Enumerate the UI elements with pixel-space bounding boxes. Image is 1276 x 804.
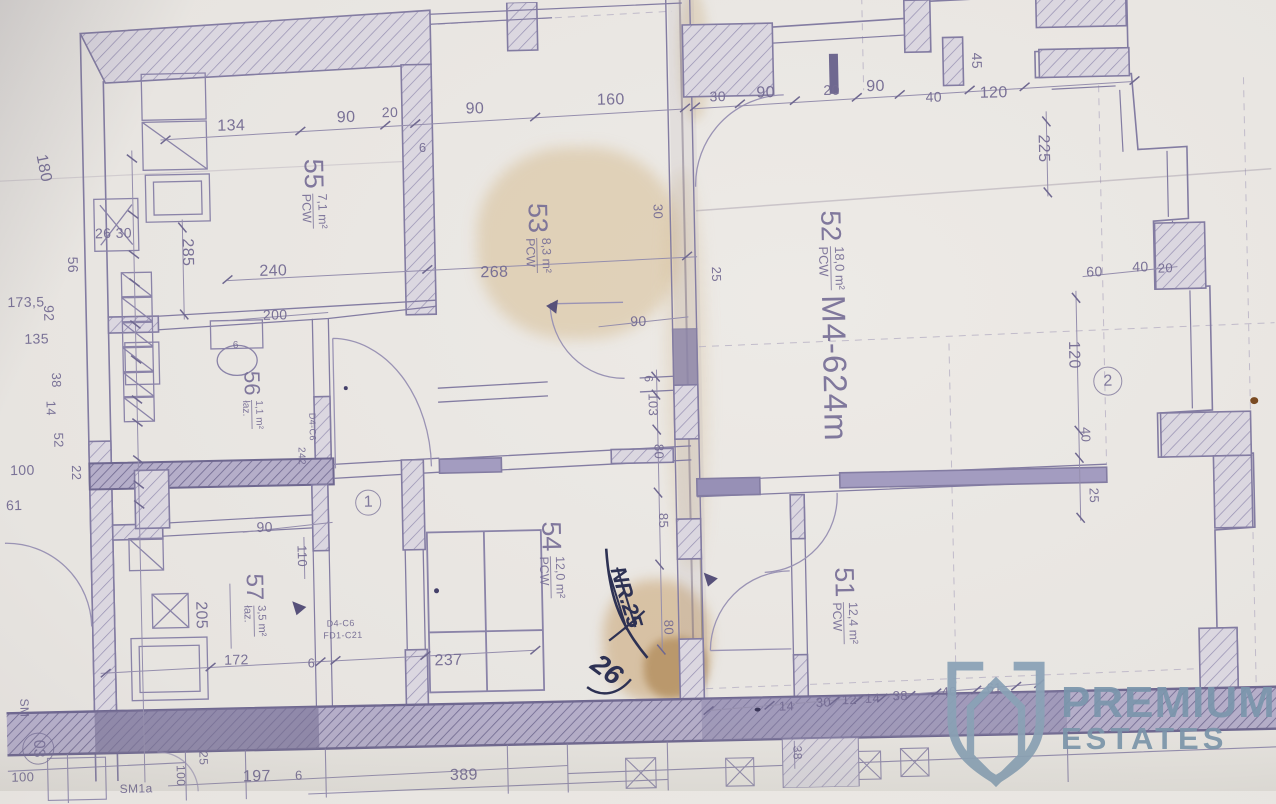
axis-marker: 03	[22, 732, 55, 765]
dimension-label: 25	[196, 751, 210, 765]
dimension-label: 12	[842, 692, 858, 707]
dimension-label: 52	[51, 432, 66, 448]
room-type: łaz.	[240, 401, 252, 430]
dimension-label: 85	[656, 513, 671, 529]
door-code-label: D4-C6	[307, 413, 318, 441]
room-type: PCW	[299, 194, 314, 229]
watermark-wordmark-line2: ESTATES	[1061, 723, 1276, 756]
dimension-label: 14	[779, 698, 795, 713]
room-area: 18,0 m²	[830, 246, 847, 290]
room-number: 54	[535, 521, 567, 552]
room-label: 538,3 m²PCW	[521, 203, 553, 274]
room-label: 5112,4 m²PCW	[828, 567, 861, 645]
dimension-label: 389	[450, 766, 478, 785]
watermark-wordmark-line1: PREMIUM	[1061, 683, 1276, 723]
dimension-label: 90	[337, 109, 356, 127]
watermark: PREMIUM ESTATES	[944, 659, 1276, 791]
room-label: 561,1 m²łaz.	[238, 371, 265, 430]
room-area: 1,1 m²	[251, 400, 265, 429]
room-label: 5218,0 m²PCWM4-624m	[811, 210, 854, 442]
room-type: PCW	[829, 602, 844, 644]
ink-speck	[344, 386, 348, 390]
handwritten-crossed-unit-number: NR.25	[605, 564, 648, 631]
door-code-label: D4-C6	[327, 618, 355, 629]
door-code-label: FD1-C21	[323, 630, 363, 641]
room-number: 56	[238, 371, 265, 396]
dimension-label: 80	[661, 620, 676, 636]
dimension-label: 100	[10, 462, 35, 479]
dimension-label: 120	[980, 84, 1008, 103]
dimension-label: 60	[1086, 263, 1103, 279]
dimension-label: 268	[480, 264, 508, 283]
dimension-label: 285	[178, 238, 197, 266]
room-area: 7,1 m²	[313, 193, 330, 228]
apartment-designation: M4-624m	[813, 295, 854, 442]
dimension-label: 172	[224, 651, 249, 668]
dimension-label: 56	[65, 256, 81, 273]
plan-code-label: SM	[17, 698, 31, 717]
handwritten-unit-number: 26	[585, 648, 629, 692]
dimension-label: 30	[709, 88, 726, 104]
dimension-label: 6	[295, 768, 303, 783]
room-label: 573,5 m²łaz.	[240, 573, 269, 637]
dimension-label: 173,5	[7, 293, 44, 310]
dimension-label: 40	[1132, 258, 1149, 274]
dimension-label: 40	[925, 89, 942, 105]
dimension-label: 61	[6, 497, 23, 513]
dimension-label: 14	[43, 401, 58, 417]
dimension-label: 20	[1158, 260, 1174, 275]
dimension-label: 90	[256, 519, 273, 535]
axis-marker: 2	[1093, 366, 1123, 396]
dimension-label: 40	[1078, 427, 1093, 443]
dimension-label: 25	[1087, 488, 1102, 504]
dimension-label: 20	[823, 82, 840, 98]
dimension-label: 38	[49, 372, 64, 388]
plan-code-label: SM1a	[120, 781, 153, 796]
dimension-label: 90	[756, 84, 775, 102]
dimension-label: 38	[893, 688, 909, 703]
room-type: PCW	[816, 246, 831, 290]
dimension-label: 14	[865, 690, 881, 705]
dimension-label: 6	[308, 655, 316, 670]
room-area: 12,0 m²	[550, 556, 567, 598]
room-label: 5412,0 m²PCW	[535, 521, 568, 599]
dimension-label: 205	[191, 601, 210, 629]
dimension-label: 6	[642, 375, 656, 382]
dimension-label: 6	[419, 140, 427, 155]
room-type: łaz.	[241, 605, 254, 637]
room-area: 12,4 m²	[843, 602, 860, 644]
dimension-label: 90	[866, 78, 885, 96]
dimension-label: 92	[41, 305, 57, 322]
ink-speck	[434, 588, 439, 593]
room-type: PCW	[523, 238, 538, 273]
dimension-label: 103	[645, 393, 660, 416]
dimension-label: 134	[217, 117, 245, 136]
dimension-label: 100	[11, 769, 34, 784]
dimension-label: 90	[465, 100, 484, 118]
axis-marker: 1	[355, 489, 382, 516]
dimension-label: 26 30	[95, 225, 132, 242]
dimension-label: 237	[434, 652, 462, 671]
dimension-label: 200	[263, 306, 288, 323]
room-number: 57	[240, 573, 269, 600]
room-area: 3,5 m²	[253, 605, 268, 637]
dimension-label: 110	[295, 545, 310, 567]
dimension-label: 120	[1064, 341, 1083, 369]
dimension-label: 80	[652, 444, 667, 460]
dimension-label: 22	[69, 465, 84, 481]
room-number: 55	[297, 158, 329, 189]
dimension-label: 197	[243, 768, 271, 787]
dimension-label: 242	[296, 447, 307, 465]
dimension-label: 240	[259, 262, 287, 281]
room-number: 52	[814, 210, 847, 242]
dimension-label: 225	[1034, 134, 1053, 162]
shield-hexagon-icon	[944, 659, 1048, 791]
dimension-label: 6	[233, 340, 239, 351]
room-type: PCW	[536, 556, 551, 598]
dimension-label: 20	[382, 104, 399, 120]
dimension-label: 30	[816, 695, 832, 710]
room-area: 8,3 m²	[537, 238, 554, 273]
room-label: 557,1 m²PCW	[297, 158, 329, 229]
dimension-label: 100	[174, 765, 188, 787]
dimension-label: 30	[650, 204, 665, 220]
dimension-label: 38	[790, 746, 804, 760]
dimension-label: 25	[709, 267, 724, 283]
dimension-label: 90	[630, 313, 647, 329]
room-number: 53	[521, 203, 553, 234]
dimension-label: 135	[24, 330, 49, 347]
dimension-label: 160	[597, 91, 625, 110]
room-number: 51	[828, 567, 860, 598]
dimension-label: 180	[32, 153, 55, 184]
dimension-label: 45	[969, 52, 985, 69]
